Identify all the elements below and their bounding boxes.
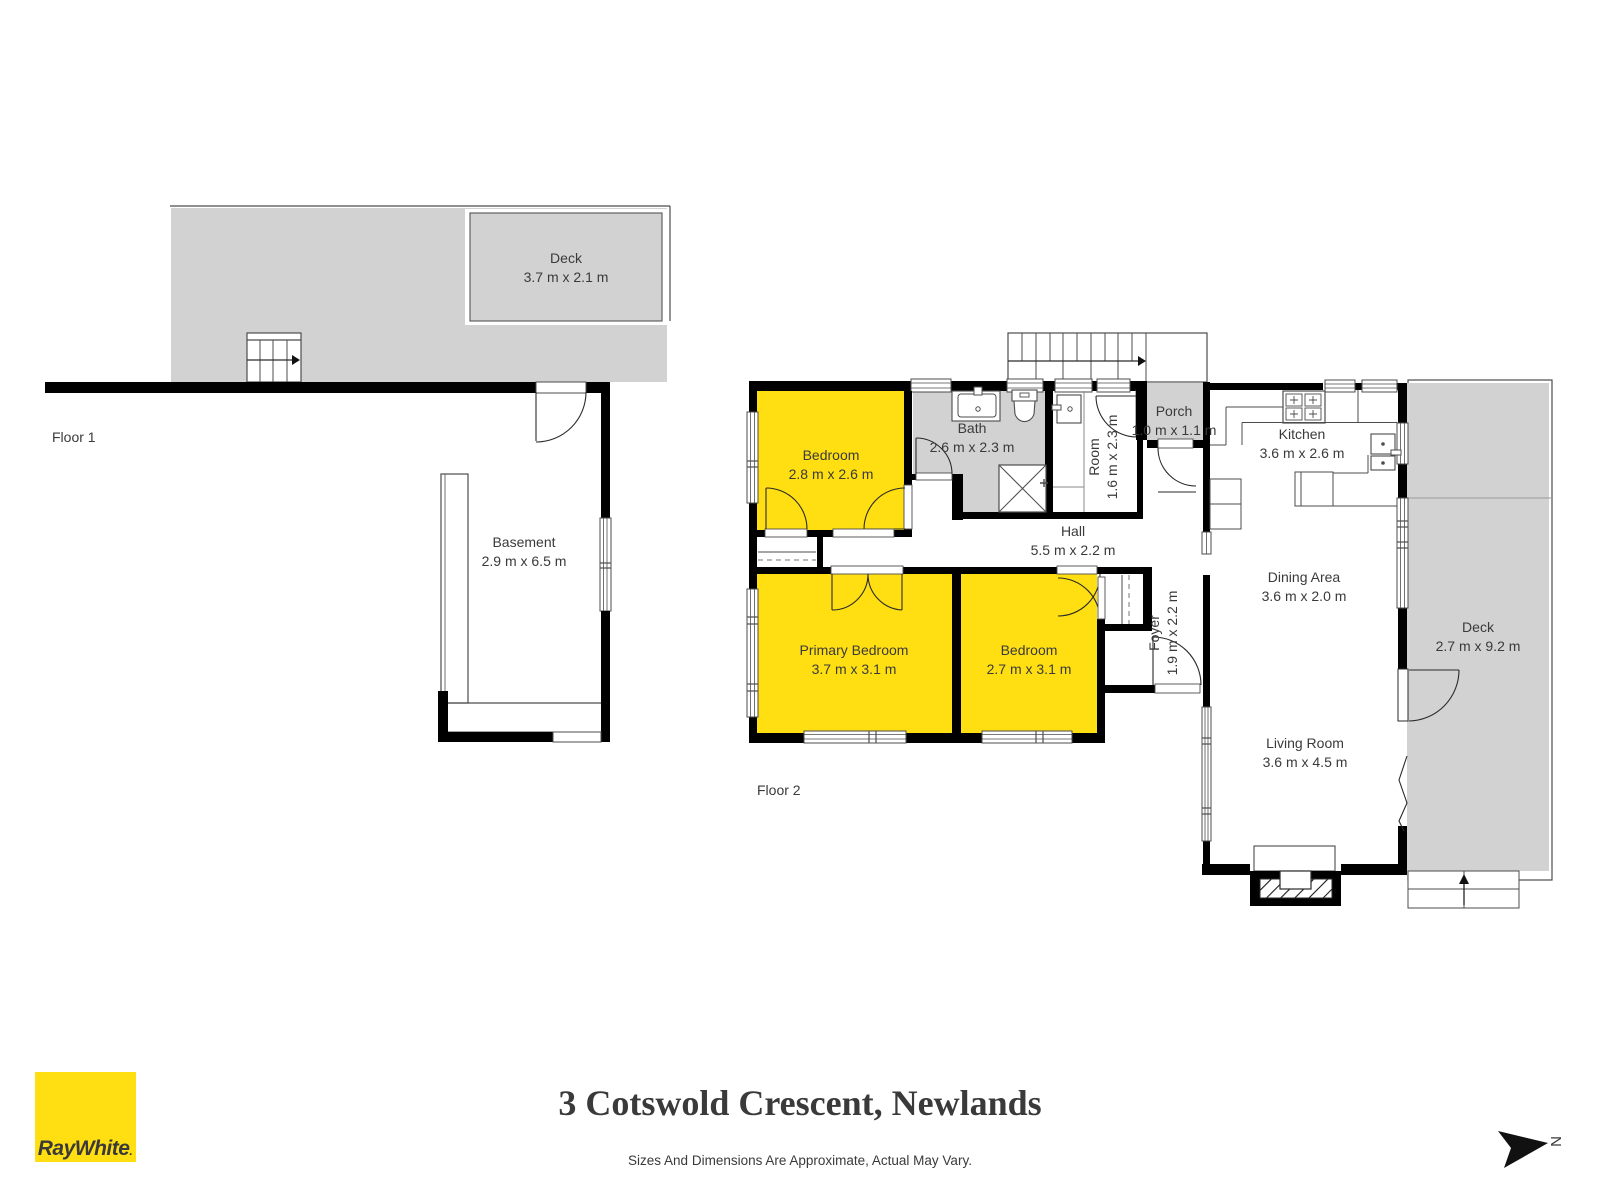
svg-text:Living Room: Living Room: [1266, 735, 1344, 751]
svg-text:3 Cotswold Crescent, Newlands: 3 Cotswold Crescent, Newlands: [558, 1083, 1041, 1123]
svg-text:Room: Room: [1086, 438, 1102, 475]
svg-text:Foyer: Foyer: [1146, 615, 1162, 651]
svg-text:Floor 1: Floor 1: [52, 429, 96, 445]
svg-text:2.7 m x 9.2 m: 2.7 m x 9.2 m: [1436, 638, 1521, 654]
svg-text:3.6 m x 2.6 m: 3.6 m x 2.6 m: [1260, 445, 1345, 461]
svg-text:Dining Area: Dining Area: [1268, 569, 1341, 585]
svg-text:1.6 m x 2.3 m: 1.6 m x 2.3 m: [1104, 415, 1120, 500]
svg-text:2.7 m x 3.1 m: 2.7 m x 3.1 m: [987, 661, 1072, 677]
svg-text:Deck: Deck: [550, 250, 583, 266]
svg-text:2.9 m x 6.5 m: 2.9 m x 6.5 m: [482, 553, 567, 569]
svg-text:Floor 2: Floor 2: [757, 782, 801, 798]
svg-text:Bedroom: Bedroom: [1001, 642, 1058, 658]
svg-text:Bath: Bath: [958, 420, 987, 436]
svg-text:Hall: Hall: [1061, 523, 1085, 539]
svg-text:N: N: [1547, 1136, 1564, 1147]
svg-text:1.9 m x 2.2 m: 1.9 m x 2.2 m: [1164, 591, 1180, 676]
svg-text:Bedroom: Bedroom: [803, 447, 860, 463]
svg-text:2.8 m x 2.6 m: 2.8 m x 2.6 m: [789, 466, 874, 482]
svg-text:Deck: Deck: [1462, 619, 1495, 635]
svg-text:RayWhite.: RayWhite.: [38, 1137, 133, 1160]
svg-text:5.5 m x 2.2 m: 5.5 m x 2.2 m: [1031, 542, 1116, 558]
svg-text:Sizes And Dimensions Are Appro: Sizes And Dimensions Are Approximate, Ac…: [628, 1153, 972, 1168]
svg-text:3.6 m x 2.0 m: 3.6 m x 2.0 m: [1262, 588, 1347, 604]
svg-text:3.7 m x 3.1 m: 3.7 m x 3.1 m: [812, 661, 897, 677]
svg-text:3.6 m x 4.5 m: 3.6 m x 4.5 m: [1263, 754, 1348, 770]
svg-text:Kitchen: Kitchen: [1279, 426, 1326, 442]
svg-text:3.7 m x 2.1 m: 3.7 m x 2.1 m: [524, 269, 609, 285]
svg-text:Porch: Porch: [1156, 403, 1193, 419]
svg-text:1.0 m x 1.1 m: 1.0 m x 1.1 m: [1132, 422, 1217, 438]
svg-text:2.6 m x 2.3 m: 2.6 m x 2.3 m: [930, 439, 1015, 455]
svg-text:Primary Bedroom: Primary Bedroom: [800, 642, 909, 658]
svg-text:Basement: Basement: [492, 534, 555, 550]
